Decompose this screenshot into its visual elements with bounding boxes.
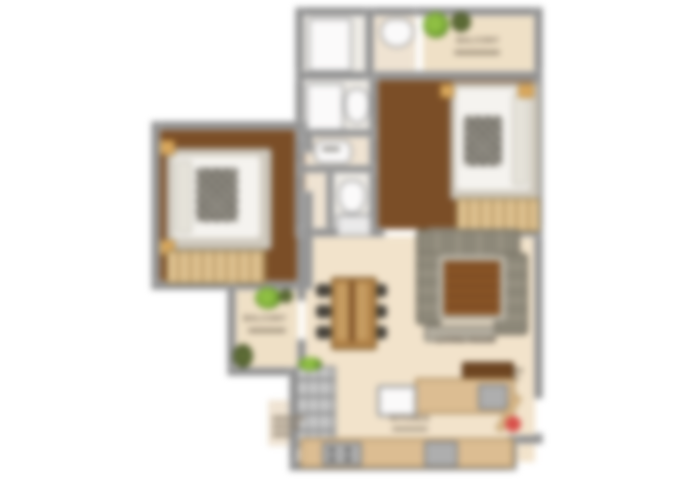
nightstand	[518, 84, 534, 98]
toilet-icon	[380, 18, 414, 48]
appliance-icon	[478, 384, 508, 410]
bed-quilt-pattern	[196, 168, 238, 222]
wall	[296, 8, 422, 15]
bed-pillows	[512, 92, 528, 186]
washbasin-icon	[314, 140, 352, 164]
floor-plan-blur-layer: BALCONY BALCONY LIVING ROOM KITCHEN	[0, 0, 700, 488]
balcony-left-dims-dash	[248, 328, 286, 333]
wardrobe	[166, 250, 266, 284]
wall	[366, 8, 373, 79]
dining-table-runner	[349, 281, 355, 342]
coffee-rug	[438, 255, 506, 321]
nook-text-dash	[272, 416, 304, 421]
wall	[327, 172, 333, 236]
sink-icon	[424, 441, 458, 467]
balcony-top-label: BALCONY	[438, 36, 518, 45]
kitchen-island-sink	[377, 385, 417, 417]
dining-chair	[316, 326, 331, 339]
balcony-top-dims-dash	[454, 50, 500, 55]
plant-icon	[451, 12, 471, 32]
vanity-dash	[322, 147, 340, 151]
balcony-left-label: BALCONY	[232, 314, 298, 323]
nightstand	[440, 84, 454, 98]
shelf-unit	[296, 366, 336, 448]
dining-chair	[316, 305, 331, 318]
plant-icon	[279, 289, 293, 303]
nook-text-dash	[272, 432, 292, 437]
wall	[152, 122, 159, 289]
toilet-icon	[338, 180, 366, 214]
kitchen-label: KITCHEN	[378, 414, 442, 423]
wardrobe	[456, 198, 540, 232]
shower-tray-icon	[306, 83, 344, 131]
plant-icon	[423, 12, 449, 38]
wall	[370, 79, 377, 236]
living-label: LIVING ROOM	[424, 336, 508, 345]
wall	[298, 236, 305, 300]
wall	[305, 192, 312, 289]
nook-text-dash	[272, 424, 300, 429]
toilet-icon	[344, 88, 370, 124]
shower-tray-icon	[336, 214, 372, 236]
wall	[152, 122, 312, 129]
floor-plan-image: BALCONY BALCONY LIVING ROOM KITCHEN	[0, 0, 700, 488]
kitchen-dims-dash	[392, 427, 428, 431]
entry-marker-dot	[505, 416, 521, 432]
plant-icon	[255, 287, 281, 309]
shower-tray-icon	[308, 18, 352, 72]
dining-chair	[316, 284, 331, 297]
plant-icon	[298, 357, 322, 371]
nightstand	[160, 140, 175, 155]
plant-icon	[233, 344, 253, 368]
bed-quilt-pattern	[464, 116, 502, 166]
wall	[296, 166, 377, 172]
bed-pillows	[176, 160, 192, 234]
wall	[296, 72, 542, 79]
stove-icon	[322, 442, 362, 466]
